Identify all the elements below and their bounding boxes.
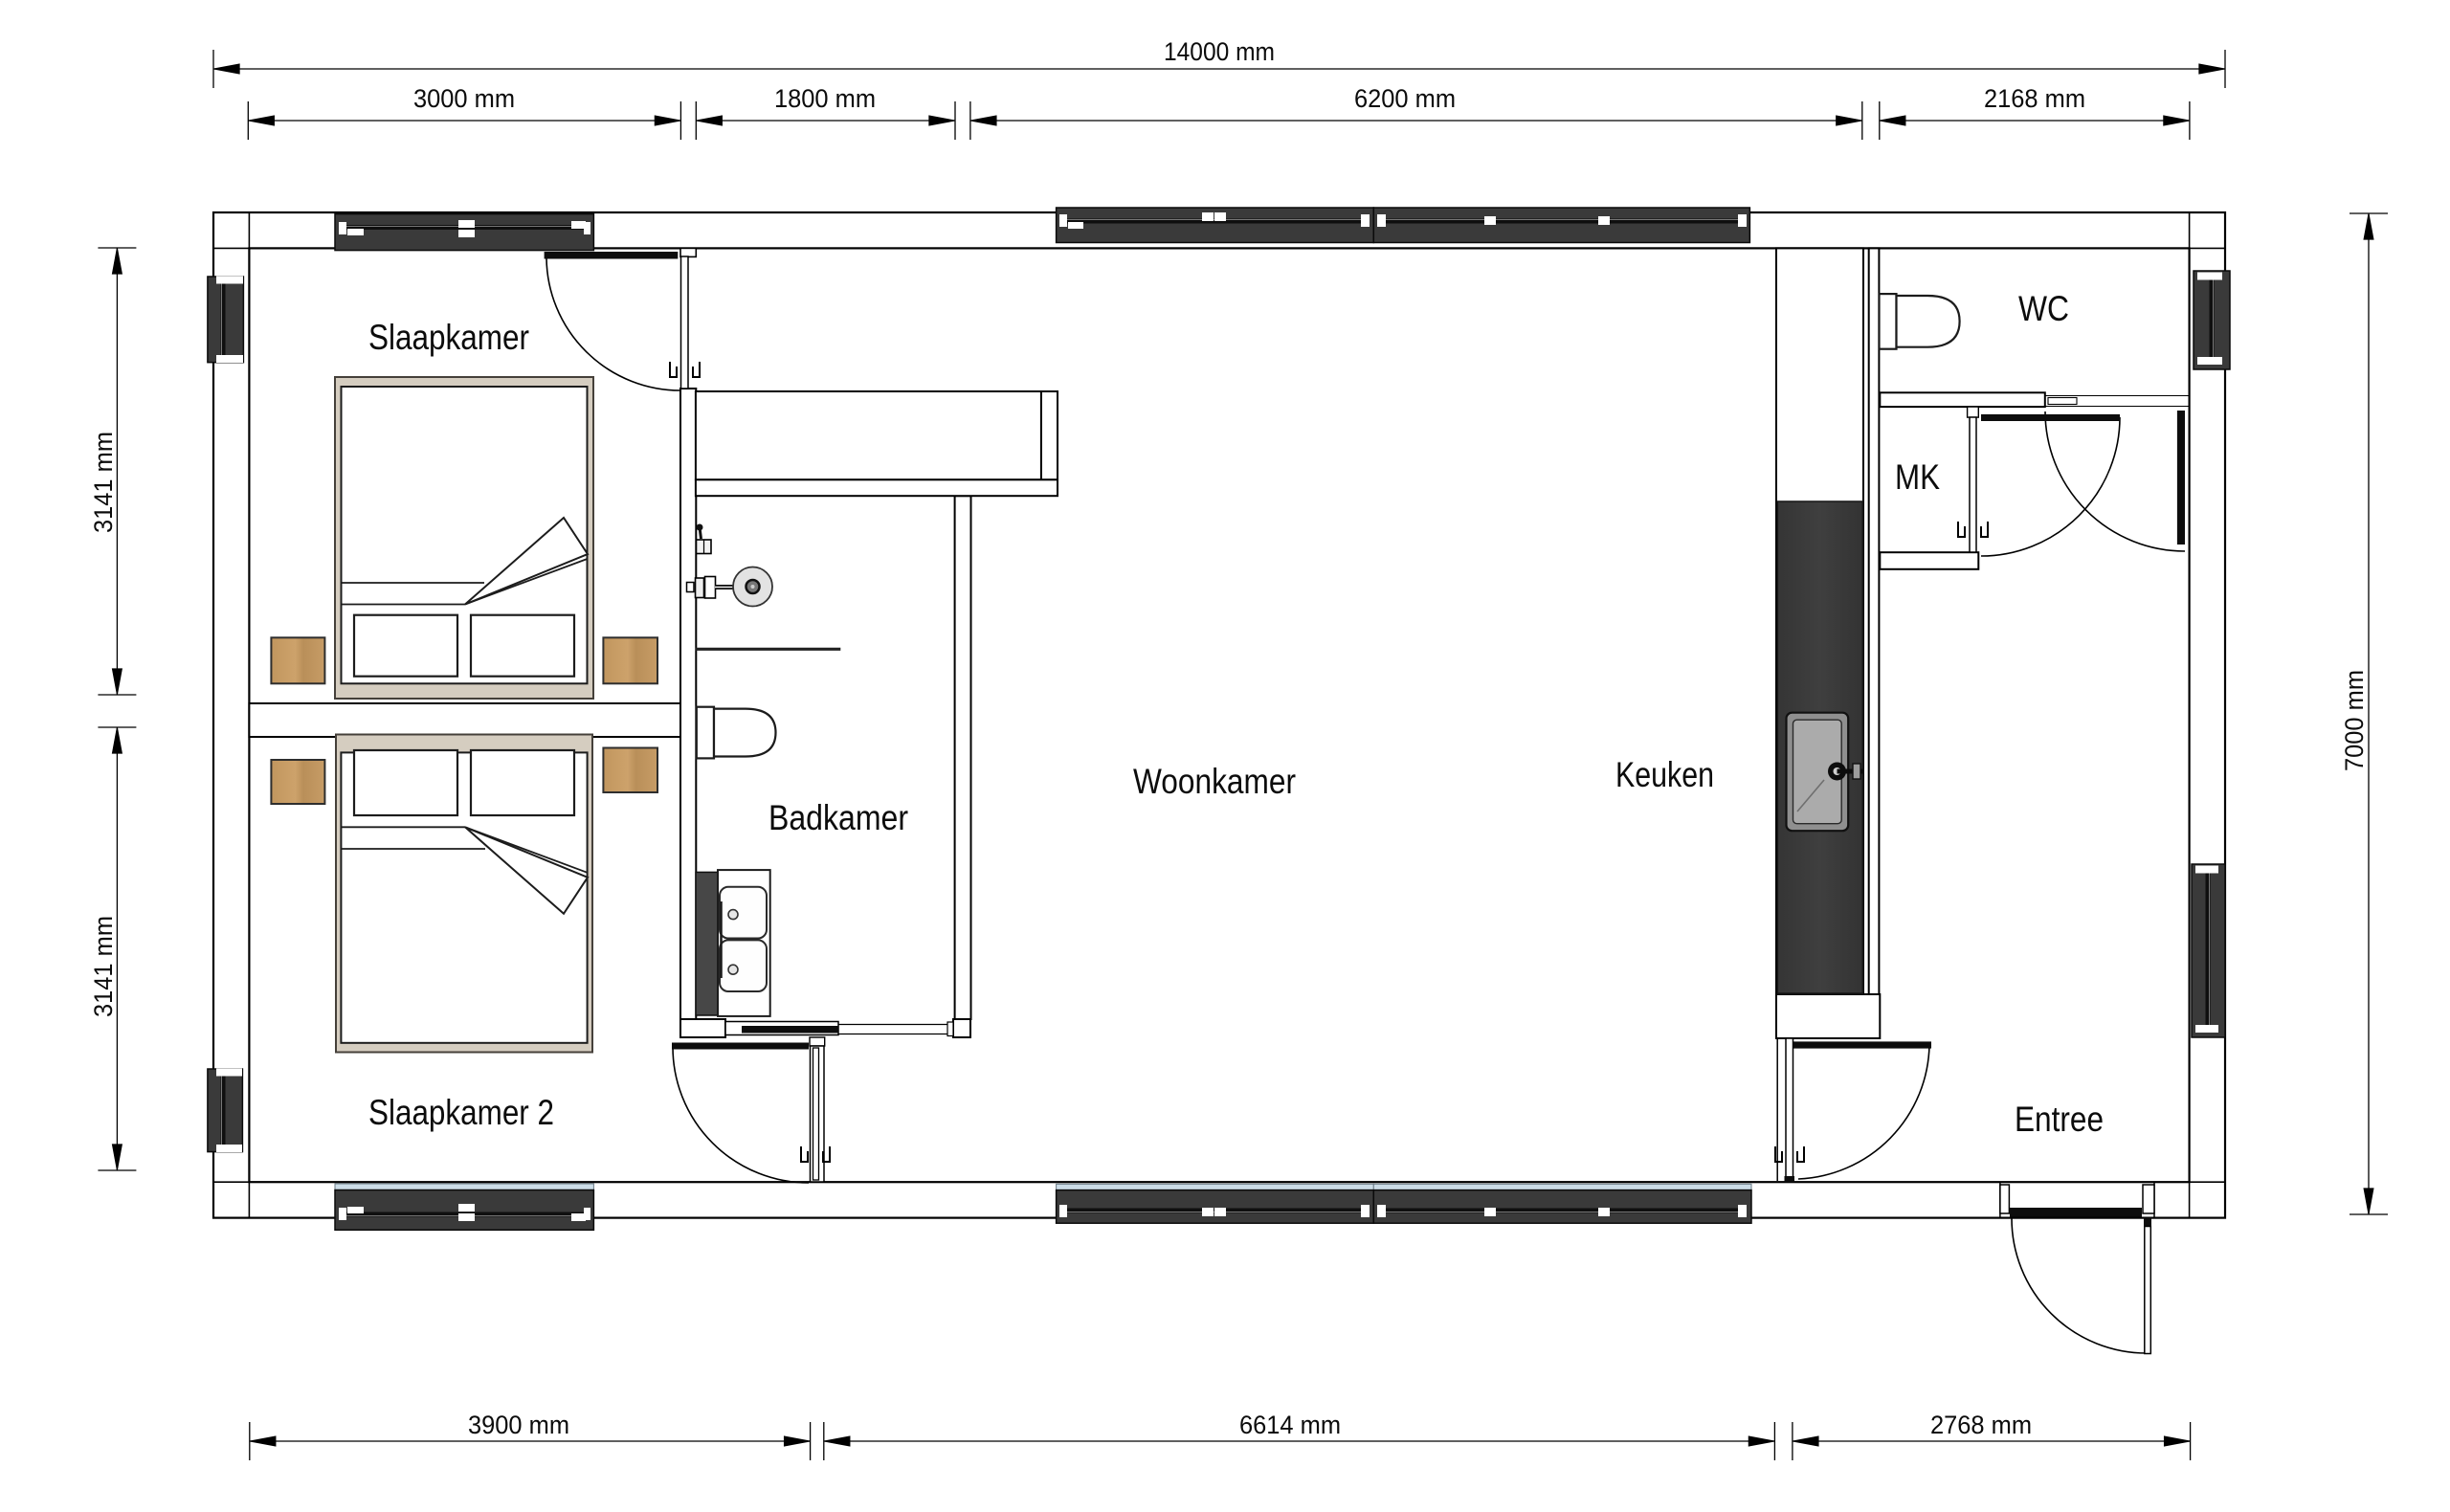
svg-text:6614 mm: 6614 mm: [1239, 1411, 1341, 1439]
svg-text:Slaapkamer 2: Slaapkamer 2: [368, 1093, 554, 1132]
svg-text:2168 mm: 2168 mm: [1984, 84, 2085, 113]
svg-text:Badkamer: Badkamer: [768, 798, 908, 837]
svg-text:Slaapkamer: Slaapkamer: [368, 318, 529, 357]
svg-text:7000 mm: 7000 mm: [2340, 670, 2369, 771]
svg-text:MK: MK: [1895, 457, 1940, 497]
svg-text:Woonkamer: Woonkamer: [1133, 762, 1296, 801]
svg-text:14000 mm: 14000 mm: [1164, 37, 1275, 66]
svg-text:1800 mm: 1800 mm: [774, 84, 876, 113]
svg-text:6200 mm: 6200 mm: [1354, 84, 1456, 113]
svg-text:Keuken: Keuken: [1615, 755, 1714, 794]
svg-text:2768 mm: 2768 mm: [1930, 1411, 2032, 1439]
svg-text:3900 mm: 3900 mm: [468, 1411, 569, 1439]
svg-text:Entree: Entree: [2015, 1100, 2104, 1139]
svg-text:WC: WC: [2018, 289, 2069, 328]
svg-text:3141 mm: 3141 mm: [89, 432, 118, 533]
svg-text:3000 mm: 3000 mm: [413, 84, 515, 113]
svg-text:3141 mm: 3141 mm: [89, 916, 118, 1017]
